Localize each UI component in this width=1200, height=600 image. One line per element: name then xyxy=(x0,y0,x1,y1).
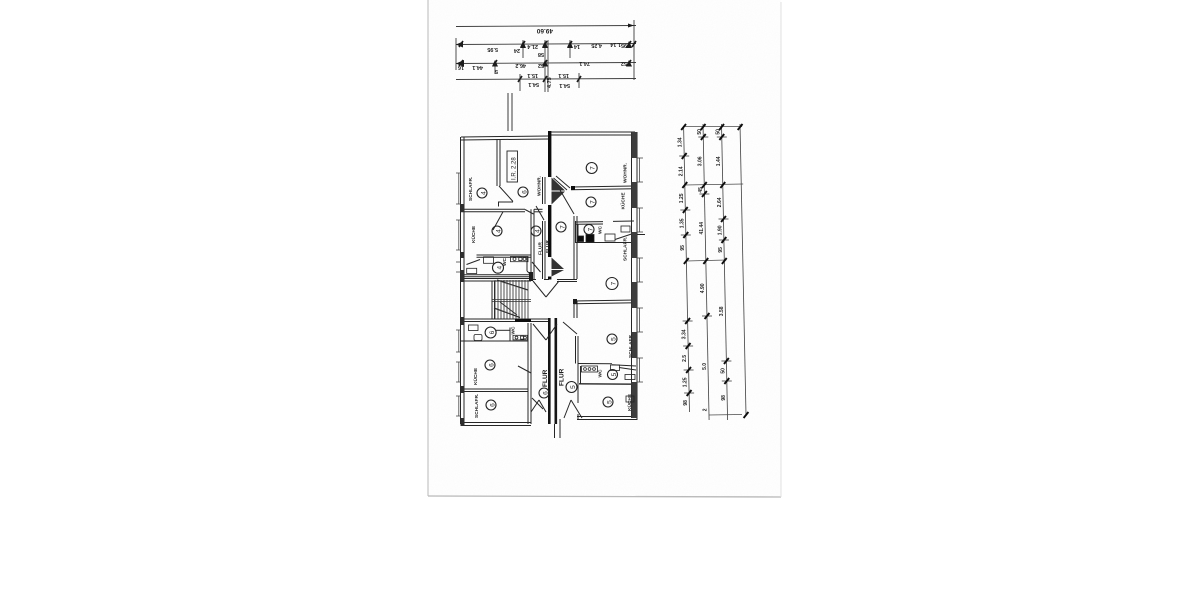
svg-text:45: 45 xyxy=(698,187,704,193)
svg-text:7: 7 xyxy=(588,227,595,231)
svg-text:1.25: 1.25 xyxy=(683,377,689,387)
svg-text:50: 50 xyxy=(720,368,726,374)
svg-text:15.1: 15.1 xyxy=(558,72,569,78)
svg-text:24: 24 xyxy=(513,47,520,53)
svg-text:I.R. 2.28: I.R. 2.28 xyxy=(512,157,518,180)
svg-text:3.34: 3.34 xyxy=(682,329,688,339)
svg-text:49.60: 49.60 xyxy=(536,27,553,34)
svg-text:2: 2 xyxy=(703,408,709,411)
svg-text:KÜCHE: KÜCHE xyxy=(620,192,627,210)
svg-text:5.95: 5.95 xyxy=(487,46,498,52)
svg-text:54.1: 54.1 xyxy=(528,81,539,87)
svg-text:6: 6 xyxy=(489,363,496,367)
svg-text:14: 14 xyxy=(573,43,580,49)
svg-text:98: 98 xyxy=(721,395,727,401)
svg-text:16: 16 xyxy=(458,64,464,70)
svg-text:2.14: 2.14 xyxy=(678,166,684,176)
svg-text:98: 98 xyxy=(683,400,689,406)
svg-text:5: 5 xyxy=(611,372,618,376)
svg-text:7: 7 xyxy=(611,281,618,285)
svg-text:WC: WC xyxy=(598,369,604,378)
svg-text:4: 4 xyxy=(481,191,488,195)
svg-text:SCHLAFR.: SCHLAFR. xyxy=(623,237,629,261)
svg-text:SCHLAFR.: SCHLAFR. xyxy=(628,334,634,358)
svg-text:44.1: 44.1 xyxy=(472,64,483,70)
svg-text:50: 50 xyxy=(716,129,722,135)
svg-text:WC: WC xyxy=(511,326,517,335)
svg-text:5.0: 5.0 xyxy=(702,363,708,370)
svg-text:5: 5 xyxy=(495,68,498,74)
svg-text:21.4: 21.4 xyxy=(526,43,538,49)
svg-text:2.64: 2.64 xyxy=(717,197,723,207)
svg-text:FLUR: FLUR xyxy=(545,240,551,253)
svg-text:KÜCHE: KÜCHE xyxy=(626,393,633,411)
svg-text:2.5: 2.5 xyxy=(682,355,688,362)
svg-text:FLUR: FLUR xyxy=(538,242,544,255)
svg-text:4.90: 4.90 xyxy=(700,283,706,293)
svg-text:WOHNR.: WOHNR. xyxy=(537,176,543,196)
svg-text:46.2: 46.2 xyxy=(515,62,526,68)
svg-text:KÜCHE: KÜCHE xyxy=(472,367,479,385)
svg-text:1.25: 1.25 xyxy=(679,193,685,203)
svg-text:5: 5 xyxy=(570,385,577,389)
svg-text:FLUR: FLUR xyxy=(559,368,566,386)
svg-text:4: 4 xyxy=(496,229,503,233)
svg-text:95: 95 xyxy=(621,42,627,48)
svg-text:WC: WC xyxy=(598,225,604,234)
svg-text:1.35: 1.35 xyxy=(679,218,685,228)
svg-text:WC: WC xyxy=(502,257,508,266)
svg-text:6: 6 xyxy=(543,391,550,395)
svg-text:KÜCHE: KÜCHE xyxy=(470,225,477,243)
svg-text:4.25: 4.25 xyxy=(591,42,602,48)
svg-text:95: 95 xyxy=(718,247,724,253)
svg-text:1.34: 1.34 xyxy=(678,137,684,147)
svg-text:1.90: 1.90 xyxy=(718,225,724,235)
svg-text:54.1: 54.1 xyxy=(559,82,570,88)
svg-text:58: 58 xyxy=(538,51,544,57)
svg-text:4.75: 4.75 xyxy=(547,77,553,88)
svg-text:15.1: 15.1 xyxy=(527,72,538,78)
svg-text:6: 6 xyxy=(489,330,496,334)
svg-text:4: 4 xyxy=(535,229,542,233)
svg-text:5: 5 xyxy=(607,400,614,404)
svg-text:SCHLAFR.: SCHLAFR. xyxy=(474,394,480,418)
svg-text:1.44: 1.44 xyxy=(716,156,722,166)
svg-text:7: 7 xyxy=(590,200,597,204)
svg-text:7: 7 xyxy=(590,166,597,170)
svg-text:3.58: 3.58 xyxy=(719,306,725,316)
svg-text:52: 52 xyxy=(538,62,544,68)
svg-text:6: 6 xyxy=(522,190,529,194)
svg-text:1.14: 1.14 xyxy=(609,41,621,47)
svg-text:6: 6 xyxy=(490,403,497,407)
svg-text:74.1: 74.1 xyxy=(579,60,590,66)
svg-text:52: 52 xyxy=(621,60,627,66)
svg-text:41.44: 41.44 xyxy=(699,222,705,235)
svg-text:SCHLAFR.: SCHLAFR. xyxy=(468,177,474,201)
svg-text:3.06: 3.06 xyxy=(698,156,704,166)
svg-text:5: 5 xyxy=(611,337,618,341)
svg-text:7: 7 xyxy=(560,225,567,229)
svg-text:FLUR: FLUR xyxy=(542,369,549,387)
svg-text:50: 50 xyxy=(697,129,703,135)
svg-text:WOHNR.: WOHNR. xyxy=(623,163,629,183)
svg-text:95: 95 xyxy=(680,245,686,251)
